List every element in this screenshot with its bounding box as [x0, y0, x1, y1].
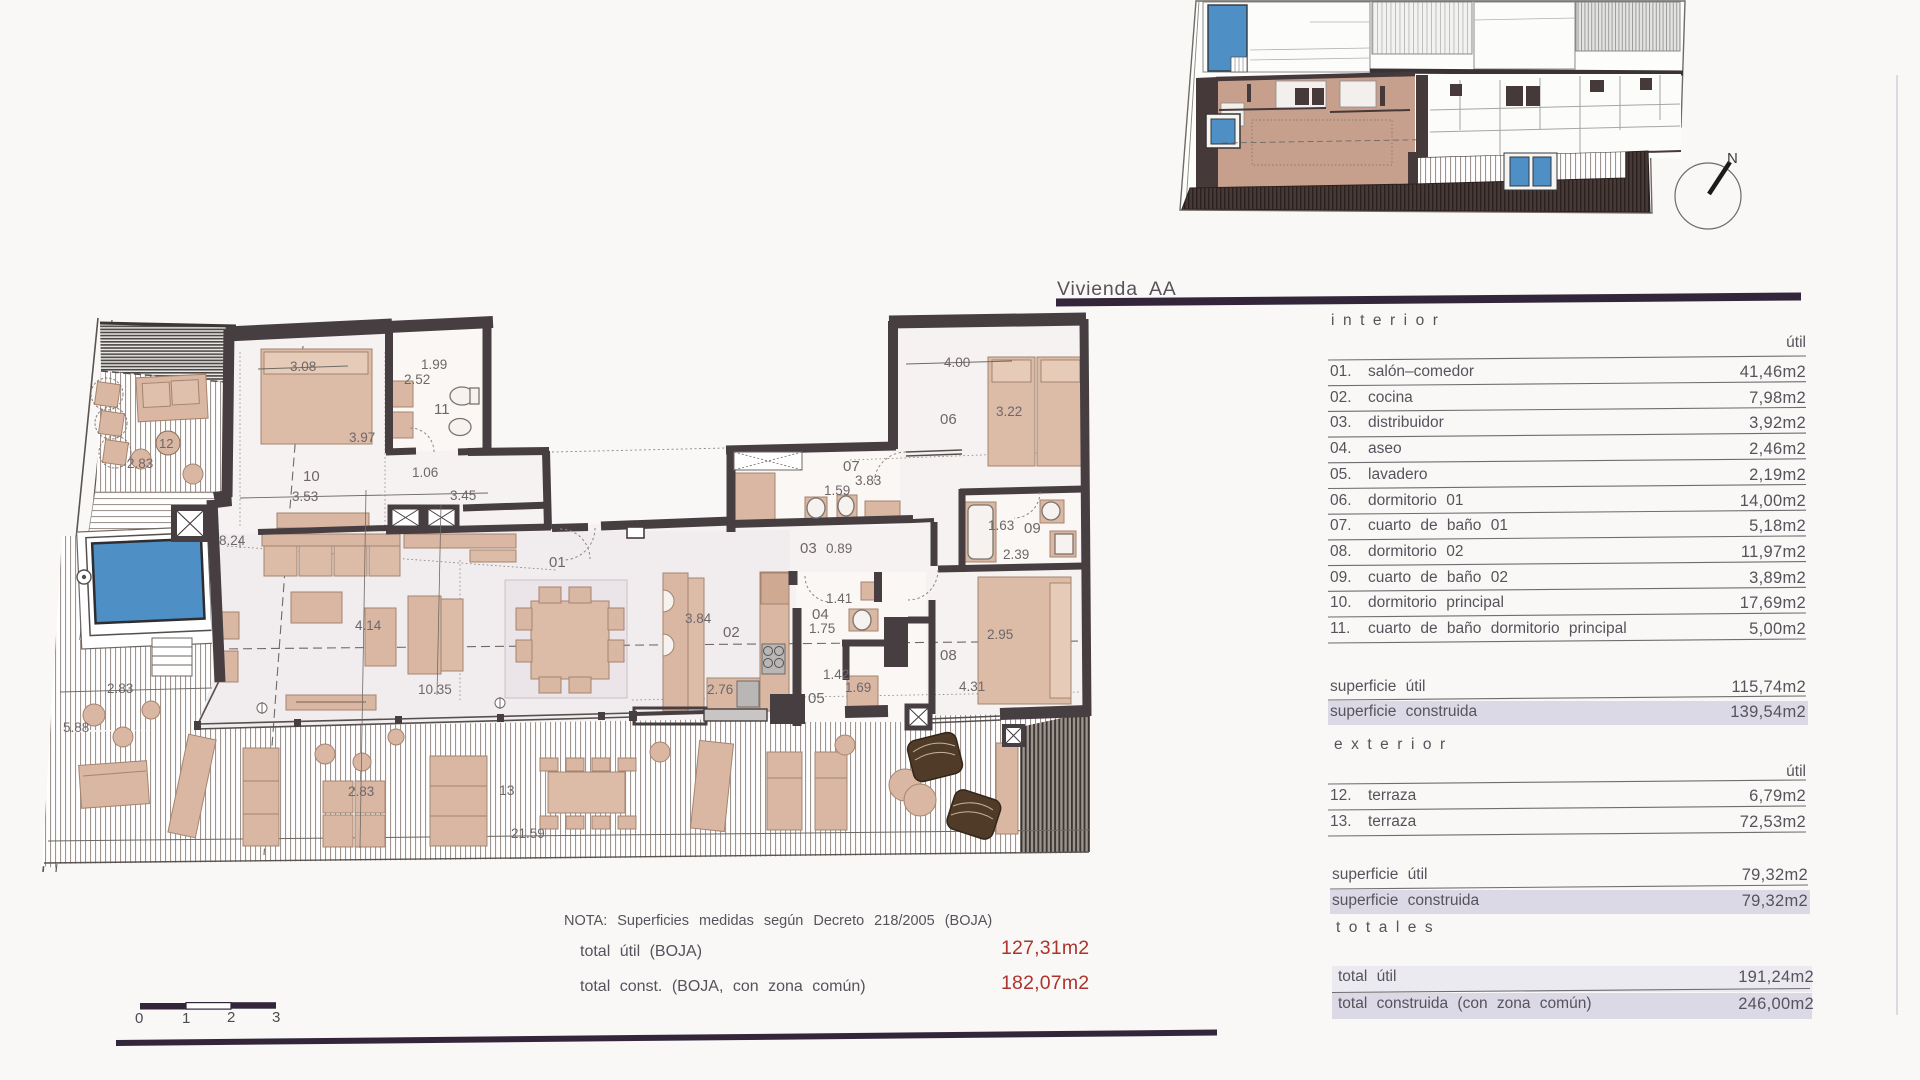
- svg-text:1.59: 1.59: [824, 483, 850, 498]
- svg-text:09: 09: [1024, 520, 1041, 537]
- svg-text:3.22: 3.22: [996, 404, 1022, 419]
- svg-text:2.52: 2.52: [404, 372, 430, 387]
- svg-text:2.83: 2.83: [127, 456, 153, 471]
- svg-text:2.83: 2.83: [107, 681, 133, 696]
- svg-text:8.24: 8.24: [219, 533, 246, 548]
- svg-text:1.41: 1.41: [826, 591, 852, 606]
- svg-text:2.39: 2.39: [1003, 547, 1029, 562]
- svg-text:10.35: 10.35: [418, 682, 452, 697]
- svg-text:1.99: 1.99: [421, 357, 447, 372]
- svg-text:2.95: 2.95: [987, 627, 1013, 642]
- svg-text:1.69: 1.69: [845, 680, 871, 695]
- svg-text:2.83: 2.83: [348, 784, 374, 799]
- svg-text:N: N: [1727, 150, 1738, 167]
- svg-text:4.31: 4.31: [959, 679, 985, 694]
- svg-text:06: 06: [940, 411, 957, 428]
- svg-text:1.63: 1.63: [988, 518, 1014, 533]
- svg-text:0.89: 0.89: [826, 541, 852, 556]
- svg-text:4.14: 4.14: [355, 618, 382, 633]
- svg-text:3.83: 3.83: [855, 473, 881, 488]
- svg-text:05: 05: [808, 690, 825, 707]
- svg-text:3.84: 3.84: [685, 611, 712, 626]
- svg-text:10: 10: [303, 468, 320, 485]
- svg-text:5.88: 5.88: [63, 720, 89, 735]
- svg-text:13: 13: [499, 782, 515, 798]
- svg-text:4.00: 4.00: [944, 355, 970, 370]
- svg-text:11: 11: [434, 401, 450, 418]
- svg-text:2.76: 2.76: [707, 682, 733, 697]
- svg-text:1.06: 1.06: [412, 465, 438, 480]
- svg-text:02: 02: [723, 624, 740, 641]
- svg-text:21.59: 21.59: [511, 826, 545, 841]
- svg-text:1.75: 1.75: [809, 621, 835, 636]
- svg-text:01: 01: [549, 554, 566, 571]
- svg-text:3.97: 3.97: [349, 430, 375, 445]
- svg-text:3.45: 3.45: [450, 488, 476, 503]
- svg-text:12: 12: [159, 436, 173, 451]
- svg-text:08: 08: [940, 647, 957, 664]
- svg-text:3.08: 3.08: [290, 359, 316, 374]
- svg-text:3.53: 3.53: [292, 489, 318, 504]
- svg-text:03: 03: [800, 540, 817, 557]
